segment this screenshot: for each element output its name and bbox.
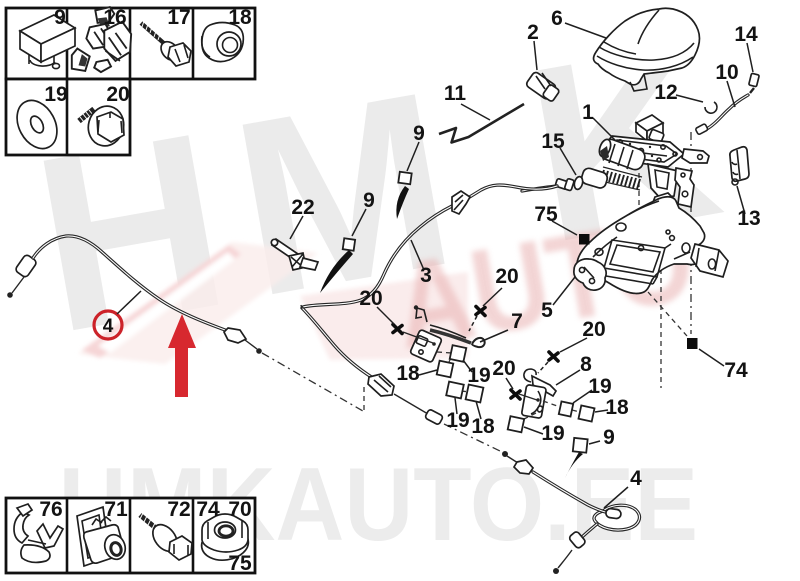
svg-text:18: 18 <box>396 362 420 385</box>
svg-text:6: 6 <box>551 7 563 30</box>
svg-text:18: 18 <box>228 6 252 29</box>
svg-text:9: 9 <box>603 426 615 449</box>
svg-text:17: 17 <box>167 6 190 29</box>
svg-text:11: 11 <box>444 82 467 105</box>
svg-text:20: 20 <box>106 83 129 106</box>
svg-text:16: 16 <box>103 6 126 29</box>
svg-text:5: 5 <box>541 299 553 322</box>
svg-text:4: 4 <box>103 316 114 337</box>
svg-text:13: 13 <box>737 207 760 230</box>
svg-text:18: 18 <box>471 415 495 438</box>
svg-text:9: 9 <box>413 122 425 145</box>
svg-text:3: 3 <box>420 264 432 287</box>
svg-text:19: 19 <box>541 422 564 445</box>
svg-text:72: 72 <box>167 498 190 521</box>
svg-text:19: 19 <box>44 83 67 106</box>
svg-text:7: 7 <box>511 310 523 333</box>
svg-text:20: 20 <box>359 287 382 310</box>
svg-text:71: 71 <box>104 498 128 521</box>
svg-text:20: 20 <box>495 265 518 288</box>
svg-text:74: 74 <box>724 359 748 382</box>
svg-text:74: 74 <box>196 498 220 521</box>
svg-text:22: 22 <box>291 196 314 219</box>
svg-text:18: 18 <box>605 396 629 419</box>
svg-text:76: 76 <box>39 498 62 521</box>
svg-text:9: 9 <box>363 189 375 212</box>
svg-text:15: 15 <box>541 130 565 153</box>
svg-text:8: 8 <box>580 353 592 376</box>
svg-text:4: 4 <box>630 467 642 490</box>
svg-text:2: 2 <box>527 21 539 44</box>
svg-text:9: 9 <box>54 6 66 29</box>
svg-text:19: 19 <box>588 375 611 398</box>
svg-text:1: 1 <box>582 101 594 124</box>
svg-text:19: 19 <box>446 409 469 432</box>
svg-text:75: 75 <box>534 203 558 226</box>
svg-text:20: 20 <box>582 318 605 341</box>
svg-text:20: 20 <box>492 357 515 380</box>
svg-text:19: 19 <box>467 364 490 387</box>
svg-text:14: 14 <box>734 23 758 46</box>
svg-text:10: 10 <box>715 61 738 84</box>
svg-text:12: 12 <box>654 81 677 104</box>
svg-text:70: 70 <box>228 498 251 521</box>
svg-text:75: 75 <box>228 552 252 575</box>
